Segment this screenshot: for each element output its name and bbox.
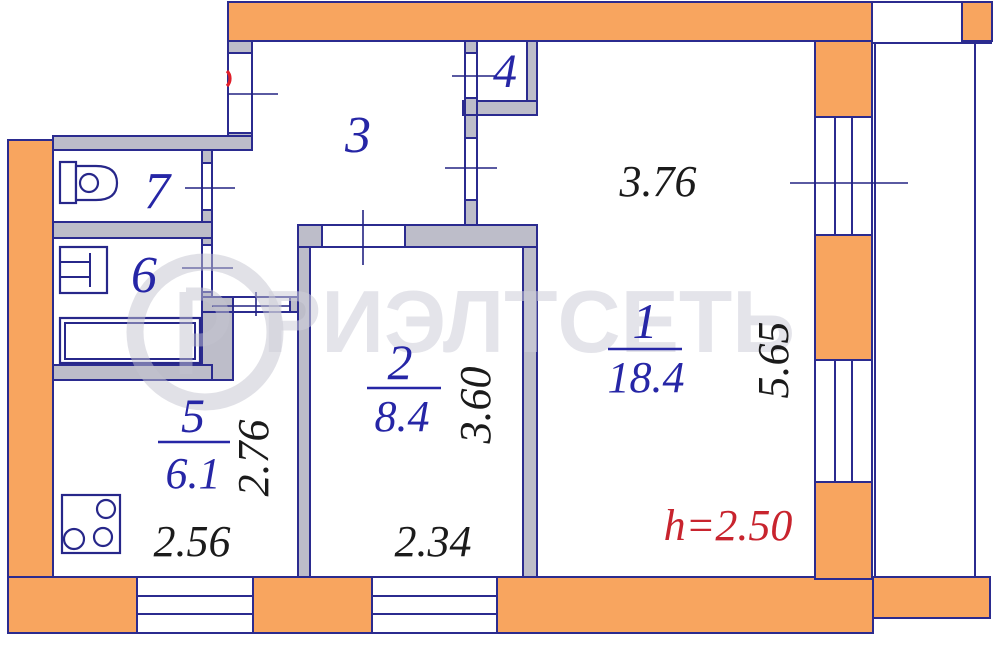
toilet-icon: [60, 162, 117, 203]
balcony-top-gap: [872, 2, 962, 43]
window-room1-upper: [815, 117, 872, 235]
dim-room1-depth: 5.65: [749, 322, 798, 399]
wall-top: [228, 2, 872, 41]
wall-right-lower: [815, 482, 872, 579]
dim-kitchen-depth: 2.76: [229, 420, 278, 497]
floor-plan: РИЭЛТСЕТЬ 1 18.4 2 8.4 3 4 5 6.1 6 7 3.7…: [0, 0, 1000, 647]
room2-number: 2: [388, 334, 413, 390]
dim-room2-depth: 3.60: [451, 367, 500, 445]
sink-icon: [60, 247, 107, 293]
room5-area: 6.1: [166, 449, 221, 498]
wall-right-middle: [815, 235, 872, 360]
room7-number: 7: [144, 163, 172, 220]
room1-door-opening: [465, 138, 477, 200]
wall-right-upper: [815, 41, 872, 117]
room4-number: 4: [493, 45, 517, 98]
window-kitchen: [137, 577, 253, 633]
ceiling-height-note: h=2.50: [664, 501, 793, 550]
wall-wc-bath-divider: [53, 222, 212, 238]
stove-icon: [62, 495, 120, 553]
wall-wc-top: [53, 136, 252, 150]
dim-room2-width: 2.34: [395, 517, 472, 566]
room5-number: 5: [181, 390, 205, 443]
room1-number: 1: [633, 293, 658, 349]
front-door-opening: [228, 53, 252, 133]
room6-number: 6: [131, 247, 157, 304]
floor-plan-canvas: РИЭЛТСЕТЬ 1 18.4 2 8.4 3 4 5 6.1 6 7 3.7…: [0, 0, 1000, 647]
wall-left: [8, 140, 53, 633]
room1-area: 18.4: [608, 353, 685, 402]
wc-door-opening: [202, 163, 212, 210]
dim-kitchen-width: 2.56: [154, 517, 231, 566]
dim-room1-width: 3.76: [619, 157, 697, 206]
watermark-text: РИЭЛТСЕТЬ: [263, 272, 795, 371]
room3-number: 3: [344, 107, 371, 164]
room2-area: 8.4: [375, 392, 430, 441]
window-room1-lower: [815, 360, 872, 482]
balcony-pier: [962, 2, 992, 41]
window-room2: [372, 577, 497, 633]
wall-bottom-right-ext: [873, 577, 990, 618]
